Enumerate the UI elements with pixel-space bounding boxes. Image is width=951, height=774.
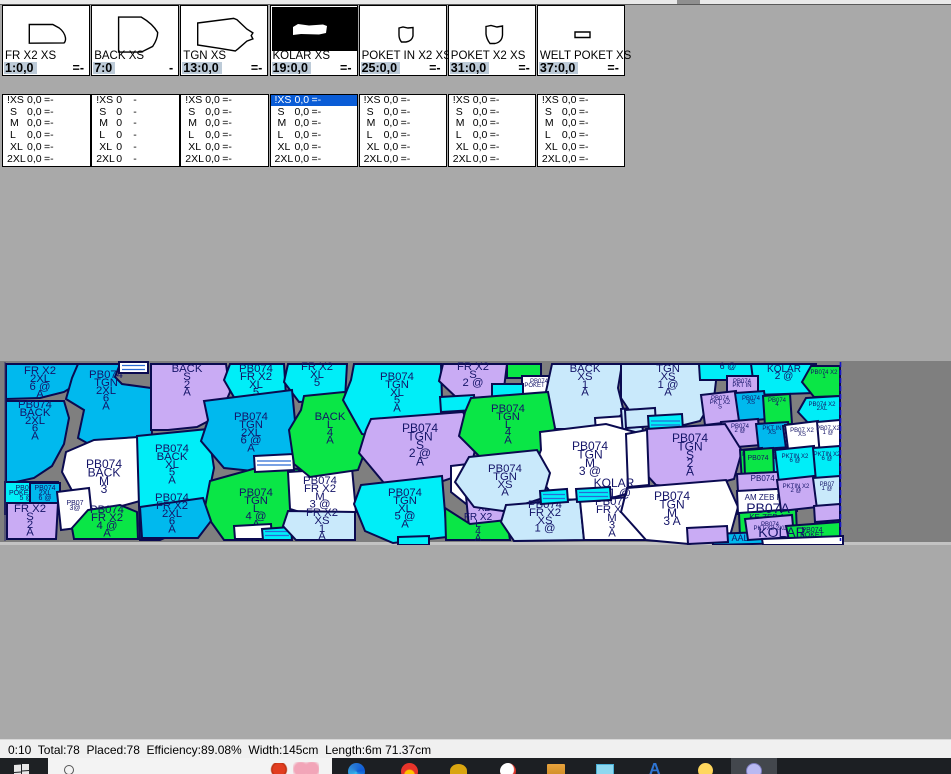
svg-text:PB074PKT IN: PB074PKT IN bbox=[732, 379, 751, 389]
svg-text:PB07A: PB07A bbox=[746, 500, 790, 516]
svg-text:1 @: 1 @ bbox=[609, 486, 631, 500]
svg-text:PB074: PB074 bbox=[747, 455, 768, 462]
svg-text:6 @: 6 @ bbox=[720, 361, 737, 371]
svg-text:AAL: AAL bbox=[731, 533, 748, 543]
svg-text:KOLAR: KOLAR bbox=[758, 524, 805, 540]
